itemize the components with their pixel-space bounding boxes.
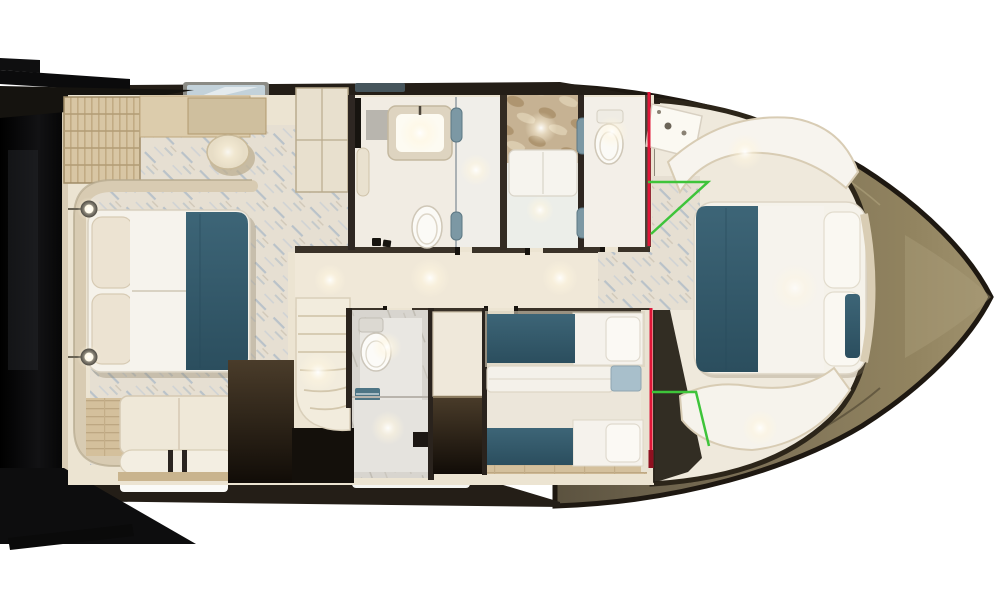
master-pillow-1	[92, 217, 132, 288]
bathroom-a-towel-rail	[357, 148, 369, 196]
aft-reflection	[8, 150, 38, 370]
vip-teal-throw	[845, 294, 860, 358]
twin-bed-1-pillow	[606, 317, 640, 361]
day-head-counter	[413, 432, 428, 447]
day-head-toilet-tank	[359, 318, 383, 332]
shower-skylight	[355, 83, 405, 92]
shower-a-handle-bottom	[451, 212, 462, 240]
bathroom-a-mat	[366, 110, 388, 140]
vip-entry-marble	[598, 252, 652, 308]
master-vanity-desk	[188, 98, 266, 134]
wardrobe-upper	[433, 312, 485, 396]
stair-housing-dark	[228, 360, 294, 483]
stair-housing-dark-2	[292, 428, 354, 483]
bathroom-a-doorframe	[355, 98, 361, 148]
twin-bed-1-teal	[487, 314, 575, 363]
shower-a-handle-top	[451, 108, 462, 142]
yacht-floorplan-stage	[0, 0, 1000, 600]
settee-wood-base	[118, 472, 238, 481]
vip-sink-faucet	[665, 123, 672, 130]
vip-teal-runner	[696, 206, 758, 372]
master-settee-bolster	[120, 450, 236, 474]
master-teal-runner	[186, 212, 248, 370]
wardrobe-lower-dark	[433, 396, 485, 474]
master-wood-floor-patch	[86, 398, 124, 456]
twin-bed-2-pillow	[606, 424, 640, 462]
stairs-right-wall	[346, 308, 352, 408]
bolster-strap-2	[182, 450, 187, 474]
vip-sink-drain	[682, 131, 687, 136]
wall-a-b	[500, 95, 507, 250]
bolster-strap-1	[168, 450, 173, 474]
master-aft-stairs	[64, 97, 140, 183]
floorplan-canvas	[0, 0, 1000, 600]
bathroom-a-left-wall	[348, 95, 355, 250]
twin-bed-2-teal	[487, 428, 573, 465]
vip-sink-knob	[657, 110, 661, 114]
twin-console-tray	[611, 366, 641, 391]
vip-pillow-1	[824, 212, 860, 288]
